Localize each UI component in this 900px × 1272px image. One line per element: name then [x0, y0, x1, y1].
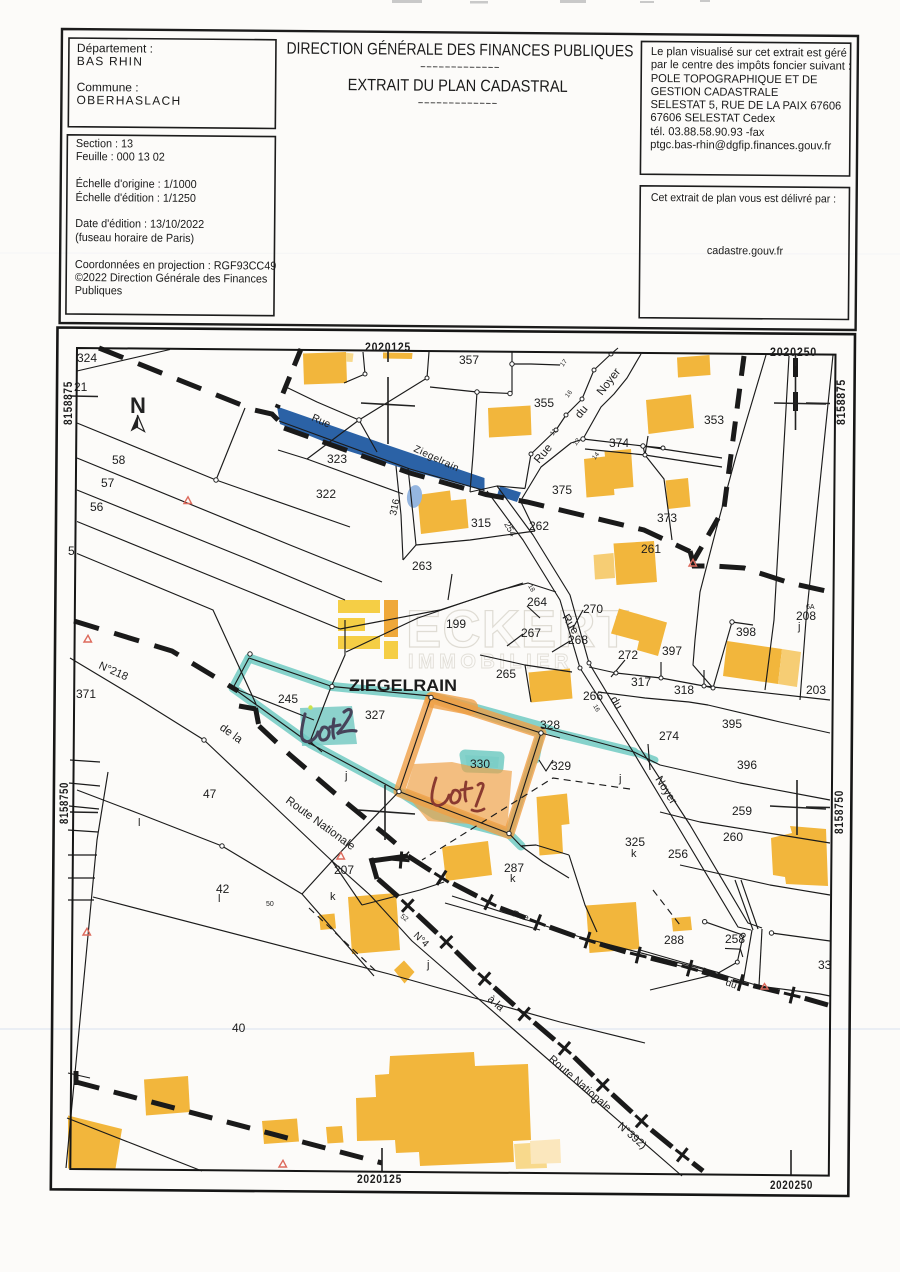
- svg-text:j: j: [344, 770, 347, 782]
- svg-text:270: 270: [583, 602, 603, 616]
- svg-text:258: 258: [725, 932, 745, 946]
- svg-text:8158875: 8158875: [836, 379, 848, 425]
- svg-text:47: 47: [203, 787, 217, 801]
- svg-text:IMMOBILIER: IMMOBILIER: [408, 651, 573, 673]
- svg-text:329: 329: [551, 759, 571, 773]
- svg-text:395: 395: [722, 717, 742, 731]
- svg-text:2020250: 2020250: [770, 1180, 813, 1192]
- svg-text:56: 56: [90, 500, 104, 514]
- svg-text:397: 397: [662, 644, 682, 658]
- svg-text:40: 40: [232, 1021, 246, 1035]
- svg-text:8158750: 8158750: [834, 790, 846, 834]
- svg-text:262: 262: [529, 519, 549, 533]
- svg-text:k: k: [510, 873, 516, 885]
- svg-text:324: 324: [77, 351, 97, 365]
- svg-text:l: l: [138, 817, 140, 829]
- svg-text:2020250: 2020250: [770, 347, 817, 359]
- svg-text:j: j: [797, 621, 800, 633]
- svg-text:357: 357: [459, 353, 479, 367]
- svg-text:353: 353: [704, 413, 724, 427]
- svg-text:245: 245: [278, 692, 298, 706]
- svg-text:5: 5: [68, 544, 75, 558]
- svg-text:ZIEGELRAIN: ZIEGELRAIN: [349, 676, 457, 695]
- svg-text:57: 57: [101, 476, 115, 490]
- svg-text:264: 264: [527, 595, 547, 609]
- svg-text:-------------: -------------: [420, 61, 501, 74]
- svg-text:327: 327: [365, 708, 385, 722]
- svg-text:j: j: [426, 959, 429, 971]
- svg-text:265: 265: [496, 667, 516, 681]
- svg-text:288: 288: [664, 933, 684, 947]
- svg-text:330: 330: [470, 757, 490, 771]
- svg-text:396: 396: [737, 758, 757, 772]
- svg-text:266: 266: [583, 689, 603, 703]
- svg-text:l: l: [218, 893, 220, 905]
- svg-text:322: 322: [316, 487, 336, 501]
- svg-text:274: 274: [659, 729, 679, 743]
- svg-text:203: 203: [806, 683, 826, 697]
- svg-text:207: 207: [334, 863, 354, 877]
- svg-text:k: k: [631, 848, 637, 860]
- svg-text:256: 256: [668, 847, 688, 861]
- svg-text:323: 323: [327, 452, 347, 466]
- svg-text:318: 318: [674, 683, 694, 697]
- svg-text:259: 259: [732, 804, 752, 818]
- svg-text:398: 398: [736, 625, 756, 639]
- svg-text:-------------: -------------: [418, 97, 499, 110]
- svg-text:j: j: [618, 773, 621, 785]
- svg-text:N: N: [130, 393, 146, 418]
- svg-text:317: 317: [631, 675, 651, 689]
- svg-text:EXTRAIT DU PLAN CADASTRAL: EXTRAIT DU PLAN CADASTRAL: [348, 76, 568, 96]
- svg-text:373: 373: [657, 511, 677, 525]
- svg-text:355: 355: [534, 396, 554, 410]
- svg-text:2020125: 2020125: [365, 342, 411, 354]
- svg-text:325: 325: [625, 835, 645, 849]
- svg-text:267: 267: [521, 626, 541, 640]
- svg-text:8158875: 8158875: [63, 381, 75, 425]
- svg-text:371: 371: [76, 687, 96, 701]
- svg-text:263: 263: [412, 559, 432, 573]
- svg-text:374: 374: [609, 436, 629, 450]
- svg-text:8158750: 8158750: [59, 782, 71, 824]
- svg-text:260: 260: [723, 830, 743, 844]
- svg-text:375: 375: [552, 483, 572, 497]
- svg-text:DIRECTION GÉNÉRALE DES FINANCE: DIRECTION GÉNÉRALE DES FINANCES PUBLIQUE…: [286, 39, 633, 61]
- svg-text:2020125: 2020125: [357, 1174, 402, 1186]
- svg-text:199: 199: [446, 617, 466, 631]
- svg-text:315: 315: [471, 516, 491, 530]
- svg-text:k: k: [330, 891, 336, 903]
- svg-text:261: 261: [641, 542, 661, 556]
- svg-text:328: 328: [540, 718, 560, 732]
- svg-text:272: 272: [618, 648, 638, 662]
- svg-text:58: 58: [112, 453, 126, 467]
- svg-text:6A: 6A: [806, 604, 815, 611]
- svg-text:50: 50: [266, 901, 274, 908]
